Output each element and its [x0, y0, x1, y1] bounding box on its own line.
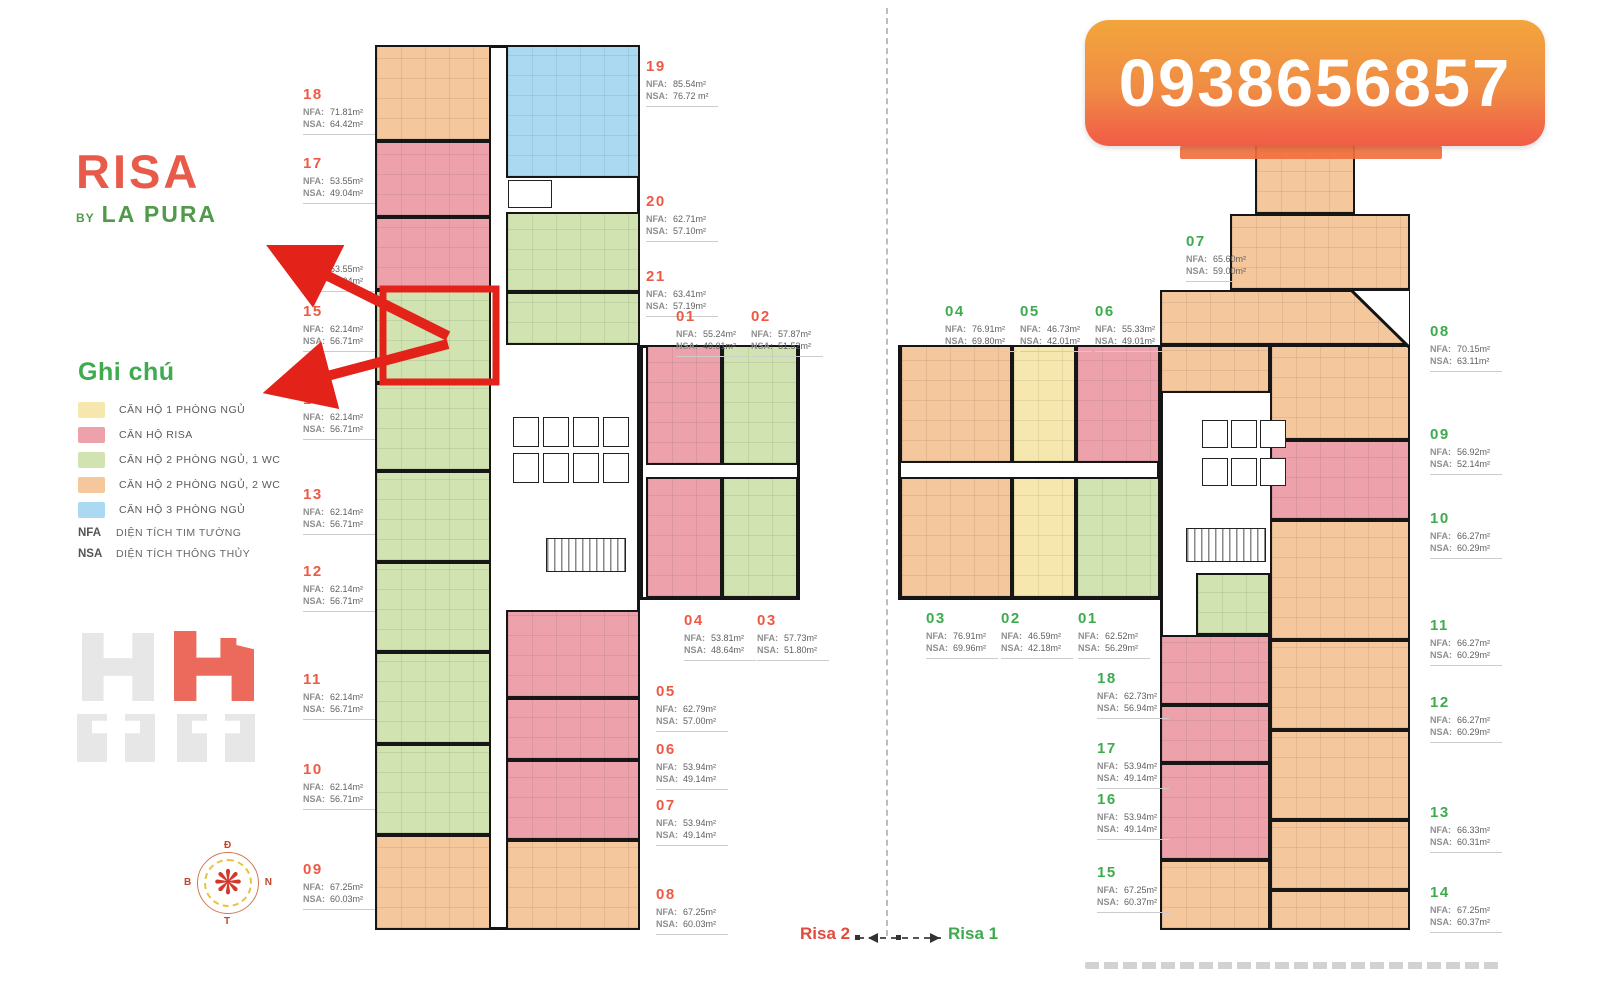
plan-unit-r2-08 [506, 840, 640, 930]
nsa-key: NSA: [1430, 649, 1457, 661]
nsa-key: NSA: [684, 644, 711, 656]
nsa-value: 49.04m² [330, 187, 363, 199]
abbreviation-key: NFA DIỆN TÍCH TIM TƯỜNG NSA DIỆN TÍCH TH… [78, 527, 250, 569]
nsa-value: 60.03m² [330, 893, 363, 905]
nsa-value: 60.03m² [683, 918, 716, 930]
plan-unit-r1-09 [1270, 440, 1410, 520]
nfa-key: NFA: [656, 703, 683, 715]
unit-label-r2-02: 02 NFA:57.87m² NSA:51.52m² [751, 308, 823, 357]
nfa-value: 67.25m² [1457, 904, 1490, 916]
abbr-nfa: NFA [78, 527, 116, 539]
nsa-value: 56.94m² [1124, 702, 1157, 714]
unit-number: 03 [757, 612, 829, 629]
compass-letter-bottom: T [224, 916, 230, 927]
nsa-key: NSA: [1097, 702, 1124, 714]
nfa-key: NFA: [1186, 253, 1213, 265]
nsa-value: 69.80m² [972, 335, 1005, 347]
footer-risa2-label: Risa 2 [800, 924, 850, 944]
nfa-key: NFA: [676, 328, 703, 340]
nfa-key: NFA: [1430, 714, 1457, 726]
unit-label-r2-16: 16 NFA:53.55m² NSA:49.04m² [303, 243, 375, 292]
nfa-key: NFA: [1097, 690, 1124, 702]
plan-unit-r1-12 [1270, 730, 1410, 820]
elevator-cell [573, 453, 599, 483]
siteplan-block-highlighted-icon [174, 631, 254, 701]
nfa-key: NFA: [656, 906, 683, 918]
unit-number: 10 [1430, 510, 1502, 527]
unit-label-r1-09: 09 NFA:56.92m² NSA:52.14m² [1430, 426, 1502, 475]
nfa-key: NFA: [1020, 323, 1047, 335]
core-room [508, 180, 552, 208]
unit-label-r1-12: 12 NFA:66.27m² NSA:60.29m² [1430, 694, 1502, 743]
plan-unit-r2-03 [722, 477, 798, 598]
nfa-value: 76.91m² [953, 630, 986, 642]
plan-unit-r1-10 [1270, 520, 1410, 640]
compass-letter-right: N [265, 877, 272, 888]
nsa-key: NSA: [303, 275, 330, 287]
nfa-key: NFA: [1430, 824, 1457, 836]
nfa-value: 67.25m² [330, 881, 363, 893]
nsa-value: 49.04m² [330, 275, 363, 287]
unit-number: 01 [676, 308, 748, 325]
nsa-key: NSA: [656, 715, 683, 727]
nsa-value: 64.42m² [330, 118, 363, 130]
unit-label-r1-08: 08 NFA:70.15m² NSA:63.11m² [1430, 323, 1502, 372]
nfa-value: 55.33m² [1122, 323, 1155, 335]
legend-item: CĂN HỘ 1 PHÒNG NGỦ [78, 402, 280, 418]
nfa-key: NFA: [1430, 446, 1457, 458]
nsa-value: 60.29m² [1457, 542, 1490, 554]
nfa-value: 67.25m² [1124, 884, 1157, 896]
nfa-value: 53.55m² [330, 263, 363, 275]
nfa-value: 57.87m² [778, 328, 811, 340]
unit-number: 12 [1430, 694, 1502, 711]
nsa-value: 56.71m² [330, 703, 363, 715]
unit-number: 04 [684, 612, 756, 629]
nfa-value: 62.52m² [1105, 630, 1138, 642]
logo-brand-text: LA PURA [102, 201, 217, 228]
nfa-key: NFA: [303, 781, 330, 793]
unit-number: 01 [1078, 610, 1150, 627]
nsa-value: 49.01m² [703, 340, 736, 352]
nfa-key: NFA: [1001, 630, 1028, 642]
nsa-key: NSA: [1097, 896, 1124, 908]
elevator-cell [573, 417, 599, 447]
elevator-cell [513, 453, 539, 483]
plan-unit-r1-01 [1076, 477, 1160, 598]
nsa-value: 48.64m² [711, 644, 744, 656]
plan-unit-r2-04 [646, 477, 722, 598]
nfa-value: 55.24m² [703, 328, 736, 340]
nfa-value: 53.94m² [1124, 760, 1157, 772]
legend: Ghi chú CĂN HỘ 1 PHÒNG NGỦ CĂN HỘ RISA C… [78, 358, 280, 527]
elevator-cell [603, 453, 629, 483]
logo-by-text: BY [76, 211, 95, 225]
plan-unit-r2-20 [506, 212, 640, 292]
unit-number: 08 [1430, 323, 1502, 340]
plan-unit-r2-12 [375, 562, 491, 652]
unit-number: 03 [926, 610, 998, 627]
nfa-value: 53.81m² [711, 632, 744, 644]
plan-unit-r1-08-top [1160, 290, 1410, 345]
unit-number: 15 [1097, 864, 1169, 881]
nfa-key: NFA: [1097, 884, 1124, 896]
nfa-value: 62.73m² [1124, 690, 1157, 702]
nsa-key: NSA: [1430, 458, 1457, 470]
unit-label-r1-01: 01 NFA:62.52m² NSA:56.29m² [1078, 610, 1150, 659]
nfa-key: NFA: [303, 583, 330, 595]
nsa-key: NSA: [757, 644, 784, 656]
nsa-key: NSA: [646, 90, 673, 102]
unit-label-r2-07: 07 NFA:53.94m² NSA:49.14m² [656, 797, 728, 846]
plan-unit-r2-11 [375, 652, 491, 744]
nsa-value: 52.14m² [1457, 458, 1490, 470]
nsa-value: 42.18m² [1028, 642, 1061, 654]
nsa-key: NSA: [656, 773, 683, 785]
nsa-value: 51.80m² [784, 644, 817, 656]
plan-unit-r1-15 [1160, 860, 1270, 930]
nfa-value: 56.92m² [1457, 446, 1490, 458]
nsa-key: NSA: [303, 335, 330, 347]
elevator-cell [543, 417, 569, 447]
plan-unit-r1-17 [1160, 705, 1270, 763]
nsa-key: NSA: [1430, 836, 1457, 848]
nfa-key: NFA: [1097, 811, 1124, 823]
nsa-value: 57.00m² [683, 715, 716, 727]
nfa-key: NFA: [1430, 904, 1457, 916]
legend-label: CĂN HỘ 3 PHÒNG NGỦ [119, 504, 245, 516]
nfa-key: NFA: [684, 632, 711, 644]
nfa-key: NFA: [757, 632, 784, 644]
legend-label: CĂN HỘ 2 PHÒNG NGỦ, 1 WC [119, 454, 280, 466]
hidden-text-remnant [1180, 146, 1442, 159]
nsa-key: NSA: [1430, 726, 1457, 738]
nsa-key: NSA: [303, 793, 330, 805]
nfa-value: 67.25m² [683, 906, 716, 918]
compass-letter-left: B [184, 877, 191, 888]
plan-unit-r2-14 [375, 383, 491, 471]
plan-unit-r2-16 [375, 217, 491, 290]
plan-unit-r1-08 [1270, 345, 1410, 440]
elevator-cell [603, 417, 629, 447]
plan-unit-r1-14 [1270, 890, 1410, 930]
nfa-value: 66.27m² [1457, 714, 1490, 726]
unit-label-r2-17: 17 NFA:53.55m² NSA:49.04m² [303, 155, 375, 204]
footer-arrow-right [930, 933, 940, 943]
abbr-nfa-meaning: DIỆN TÍCH TIM TƯỜNG [116, 527, 241, 539]
nsa-value: 56.29m² [1105, 642, 1138, 654]
nsa-value: 49.14m² [683, 829, 716, 841]
nsa-key: NSA: [303, 118, 330, 130]
nsa-key: NSA: [1097, 823, 1124, 835]
nsa-value: 60.37m² [1457, 916, 1490, 928]
nsa-value: 56.71m² [330, 595, 363, 607]
unit-number: 07 [656, 797, 728, 814]
plan-unit-r1-03 [900, 477, 1012, 598]
nsa-key: NSA: [751, 340, 778, 352]
legend-title: Ghi chú [78, 358, 280, 387]
unit-label-r2-03: 03 NFA:57.73m² NSA:51.80m² [757, 612, 829, 661]
footer-risa1-label: Risa 1 [948, 924, 998, 944]
nfa-value: 62.14m² [330, 583, 363, 595]
nsa-key: NSA: [945, 335, 972, 347]
unit-number: 07 [1186, 233, 1258, 250]
nsa-value: 59.00m² [1213, 265, 1246, 277]
building-separator-line [886, 8, 888, 936]
elevator-cell [1202, 420, 1228, 448]
unit-label-r2-19: 19 NFA:85.54m² NSA:76.72 m² [646, 58, 718, 107]
plan-unit-r1-13 [1270, 820, 1410, 890]
unit-label-r1-16: 16 NFA:53.94m² NSA:49.14m² [1097, 791, 1169, 840]
footer-arrow-left [868, 933, 878, 943]
nsa-key: NSA: [1430, 916, 1457, 928]
legend-item: CĂN HỘ 2 PHÒNG NGỦ, 1 WC [78, 452, 280, 468]
legend-swatch-green [78, 452, 105, 468]
unit-number: 20 [646, 193, 718, 210]
unit-label-r2-08: 08 NFA:67.25m² NSA:60.03m² [656, 886, 728, 935]
elevator-cell [1202, 458, 1228, 486]
plan-unit-r2-07 [506, 760, 640, 840]
plan-unit-r1-18 [1160, 635, 1270, 705]
nsa-value: 56.71m² [330, 423, 363, 435]
plan-unit-r2-02 [722, 345, 798, 465]
plan-unit-r1-01-slab [1196, 573, 1270, 635]
unit-label-r1-13: 13 NFA:66.33m² NSA:60.31m² [1430, 804, 1502, 853]
nsa-value: 76.72 m² [673, 90, 709, 102]
plan-unit-r2-15 [375, 290, 491, 383]
abbr-nsa-meaning: DIỆN TÍCH THÔNG THỦY [116, 548, 250, 560]
nfa-key: NFA: [303, 691, 330, 703]
unit-label-r1-15: 15 NFA:67.25m² NSA:60.37m² [1097, 864, 1169, 913]
nfa-value: 62.14m² [330, 323, 363, 335]
floorplan-canvas: RISA BY LA PURA Ghi chú CĂN HỘ 1 PHÒNG N… [0, 0, 1600, 982]
nfa-value: 62.79m² [683, 703, 716, 715]
nsa-key: NSA: [303, 187, 330, 199]
nsa-value: 63.11m² [1457, 355, 1489, 367]
unit-number: 04 [945, 303, 1017, 320]
nsa-value: 60.29m² [1457, 649, 1490, 661]
plan-unit-r1-07 [1160, 345, 1270, 393]
unit-label-r2-18: 18 NFA:71.81m² NSA:64.42m² [303, 86, 375, 135]
nfa-value: 65.60m² [1213, 253, 1246, 265]
elevator-cell [513, 417, 539, 447]
plan-unit-r2-17 [375, 141, 491, 217]
nsa-key: NSA: [303, 703, 330, 715]
plan-unit-r1-16 [1160, 763, 1270, 860]
siteplan-smallblock-icon [177, 714, 207, 762]
nsa-value: 69.96m² [953, 642, 986, 654]
legend-item: CĂN HỘ RISA [78, 427, 280, 443]
nfa-value: 57.73m² [784, 632, 817, 644]
nsa-value: 49.14m² [1124, 772, 1157, 784]
compass-letter-top: Đ [224, 840, 231, 851]
nfa-key: NFA: [751, 328, 778, 340]
phone-banner[interactable]: 0938656857 [1085, 20, 1545, 146]
logo-risa-text: RISA [76, 148, 217, 195]
nfa-value: 53.94m² [1124, 811, 1157, 823]
compass-rose: ❋ Đ N T B [197, 852, 259, 914]
unit-number: 12 [303, 563, 375, 580]
unit-label-r2-11: 11 NFA:62.14m² NSA:56.71m² [303, 671, 375, 720]
footer-dot [855, 935, 860, 940]
stairwell [1186, 528, 1266, 562]
unit-number: 14 [303, 391, 375, 408]
nfa-key: NFA: [1430, 343, 1457, 355]
siteplan-smallblock-icon [125, 714, 155, 762]
nsa-value: 60.29m² [1457, 726, 1490, 738]
nfa-value: 71.81m² [330, 106, 363, 118]
unit-label-r2-20: 20 NFA:62.71m² NSA:57.10m² [646, 193, 718, 242]
nsa-value: 42.01m² [1047, 335, 1080, 347]
unit-label-r1-06: 06 NFA:55.33m² NSA:49.01m² [1095, 303, 1167, 352]
nsa-key: NSA: [1097, 772, 1124, 784]
nsa-key: NSA: [1020, 335, 1047, 347]
nfa-value: 76.91m² [972, 323, 1005, 335]
nfa-key: NFA: [646, 78, 673, 90]
elevator-cell [1231, 420, 1257, 448]
nfa-key: NFA: [303, 106, 330, 118]
nsa-key: NSA: [676, 340, 703, 352]
nfa-value: 62.14m² [330, 781, 363, 793]
nfa-key: NFA: [1078, 630, 1105, 642]
nsa-key: NSA: [1001, 642, 1028, 654]
unit-number: 21 [646, 268, 718, 285]
unit-label-r1-11: 11 NFA:66.27m² NSA:60.29m² [1430, 617, 1502, 666]
legend-swatch-orange [78, 477, 105, 493]
nsa-value: 56.71m² [330, 335, 363, 347]
siteplan-block-gray-icon [82, 633, 154, 701]
nfa-value: 46.73m² [1047, 323, 1080, 335]
nfa-key: NFA: [1097, 760, 1124, 772]
nfa-key: NFA: [303, 506, 330, 518]
nsa-value: 49.14m² [683, 773, 716, 785]
unit-number: 18 [303, 86, 375, 103]
unit-label-r2-01: 01 NFA:55.24m² NSA:49.01m² [676, 308, 748, 357]
nsa-key: NSA: [1078, 642, 1105, 654]
unit-label-r2-04: 04 NFA:53.81m² NSA:48.64m² [684, 612, 756, 661]
plan-unit-r2-10 [375, 744, 491, 835]
legend-label: CĂN HỘ 1 PHÒNG NGỦ [119, 404, 245, 416]
unit-label-r1-10: 10 NFA:66.27m² NSA:60.29m² [1430, 510, 1502, 559]
unit-label-r1-14: 14 NFA:67.25m² NSA:60.37m² [1430, 884, 1502, 933]
plan-unit-r2-01 [646, 345, 722, 465]
nfa-value: 53.55m² [330, 175, 363, 187]
nsa-key: NSA: [1430, 542, 1457, 554]
nfa-value: 66.27m² [1457, 530, 1490, 542]
nfa-value: 63.41m² [673, 288, 706, 300]
unit-label-r2-13: 13 NFA:62.14m² NSA:56.71m² [303, 486, 375, 535]
plan-unit-r1-06 [1076, 345, 1160, 463]
nfa-key: NFA: [1095, 323, 1122, 335]
nsa-value: 49.01m² [1122, 335, 1155, 347]
nsa-key: NSA: [303, 423, 330, 435]
plan-unit-r1-05 [1012, 345, 1076, 463]
legend-label: CĂN HỘ 2 PHÒNG NGỦ, 2 WC [119, 479, 280, 491]
nsa-value: 49.14m² [1124, 823, 1157, 835]
legend-swatch-blue [78, 502, 105, 518]
plan-unit-r1-11 [1270, 640, 1410, 730]
plan-unit-r2-06 [506, 698, 640, 760]
unit-label-r2-09: 09 NFA:67.25m² NSA:60.03m² [303, 861, 375, 910]
nsa-key: NSA: [646, 300, 673, 312]
nsa-key: NSA: [303, 893, 330, 905]
elevator-cell [1231, 458, 1257, 486]
siteplan-smallblock-icon [225, 714, 255, 762]
plan-unit-r2-05 [506, 610, 640, 698]
unit-label-r2-14: 14 NFA:62.14m² NSA:56.71m² [303, 391, 375, 440]
nsa-key: NSA: [656, 918, 683, 930]
nsa-key: NSA: [303, 518, 330, 530]
unit-number: 16 [303, 243, 375, 260]
nfa-key: NFA: [1430, 637, 1457, 649]
fine-print-illegible [1085, 962, 1500, 969]
nsa-key: NSA: [656, 829, 683, 841]
unit-number: 18 [1097, 670, 1169, 687]
nsa-value: 51.52m² [778, 340, 811, 352]
nfa-key: NFA: [303, 263, 330, 275]
legend-label: CĂN HỘ RISA [119, 429, 193, 441]
nfa-key: NFA: [656, 761, 683, 773]
nsa-value: 56.71m² [330, 518, 363, 530]
unit-label-r1-03: 03 NFA:76.91m² NSA:69.96m² [926, 610, 998, 659]
unit-number: 05 [1020, 303, 1092, 320]
unit-number: 02 [751, 308, 823, 325]
unit-label-r1-05: 05 NFA:46.73m² NSA:42.01m² [1020, 303, 1092, 352]
nfa-value: 62.14m² [330, 691, 363, 703]
nfa-key: NFA: [1430, 530, 1457, 542]
unit-number: 19 [646, 58, 718, 75]
legend-swatch-yellow [78, 402, 105, 418]
legend-swatch-pink [78, 427, 105, 443]
nfa-key: NFA: [945, 323, 972, 335]
siteplan-smallblock-icon [77, 714, 107, 762]
nfa-value: 53.94m² [683, 817, 716, 829]
unit-label-r1-07: 07 NFA:65.60m² NSA:59.00m² [1186, 233, 1258, 282]
plan-unit-r2-13 [375, 471, 491, 562]
unit-number: 06 [656, 741, 728, 758]
unit-number: 08 [656, 886, 728, 903]
nfa-value: 66.33m² [1457, 824, 1490, 836]
unit-number: 06 [1095, 303, 1167, 320]
plan-unit-r2-21 [506, 292, 640, 345]
nfa-value: 53.94m² [683, 761, 716, 773]
nfa-value: 62.14m² [330, 506, 363, 518]
plan-unit-r1-02 [1012, 477, 1076, 598]
legend-item: CĂN HỘ 2 PHÒNG NGỦ, 2 WC [78, 477, 280, 493]
unit-number: 16 [1097, 791, 1169, 808]
nsa-key: NSA: [1095, 335, 1122, 347]
nsa-value: 60.37m² [1124, 896, 1157, 908]
legend-item: CĂN HỘ 3 PHÒNG NGỦ [78, 502, 280, 518]
nfa-key: NFA: [926, 630, 953, 642]
nsa-key: NSA: [1186, 265, 1213, 277]
unit-number: 10 [303, 761, 375, 778]
unit-label-r2-06: 06 NFA:53.94m² NSA:49.14m² [656, 741, 728, 790]
unit-number: 13 [1430, 804, 1502, 821]
unit-number: 11 [303, 671, 375, 688]
footer-dot [896, 935, 901, 940]
nsa-key: NSA: [1430, 355, 1457, 367]
nfa-value: 66.27m² [1457, 637, 1490, 649]
nsa-value: 57.10m² [673, 225, 706, 237]
compass-flower-icon: ❋ [197, 852, 259, 914]
unit-number: 17 [1097, 740, 1169, 757]
abbr-nsa: NSA [78, 548, 116, 560]
unit-label-r1-18: 18 NFA:62.73m² NSA:56.94m² [1097, 670, 1169, 719]
nfa-key: NFA: [303, 175, 330, 187]
plan-unit-r2-09 [375, 835, 491, 930]
nsa-key: NSA: [646, 225, 673, 237]
